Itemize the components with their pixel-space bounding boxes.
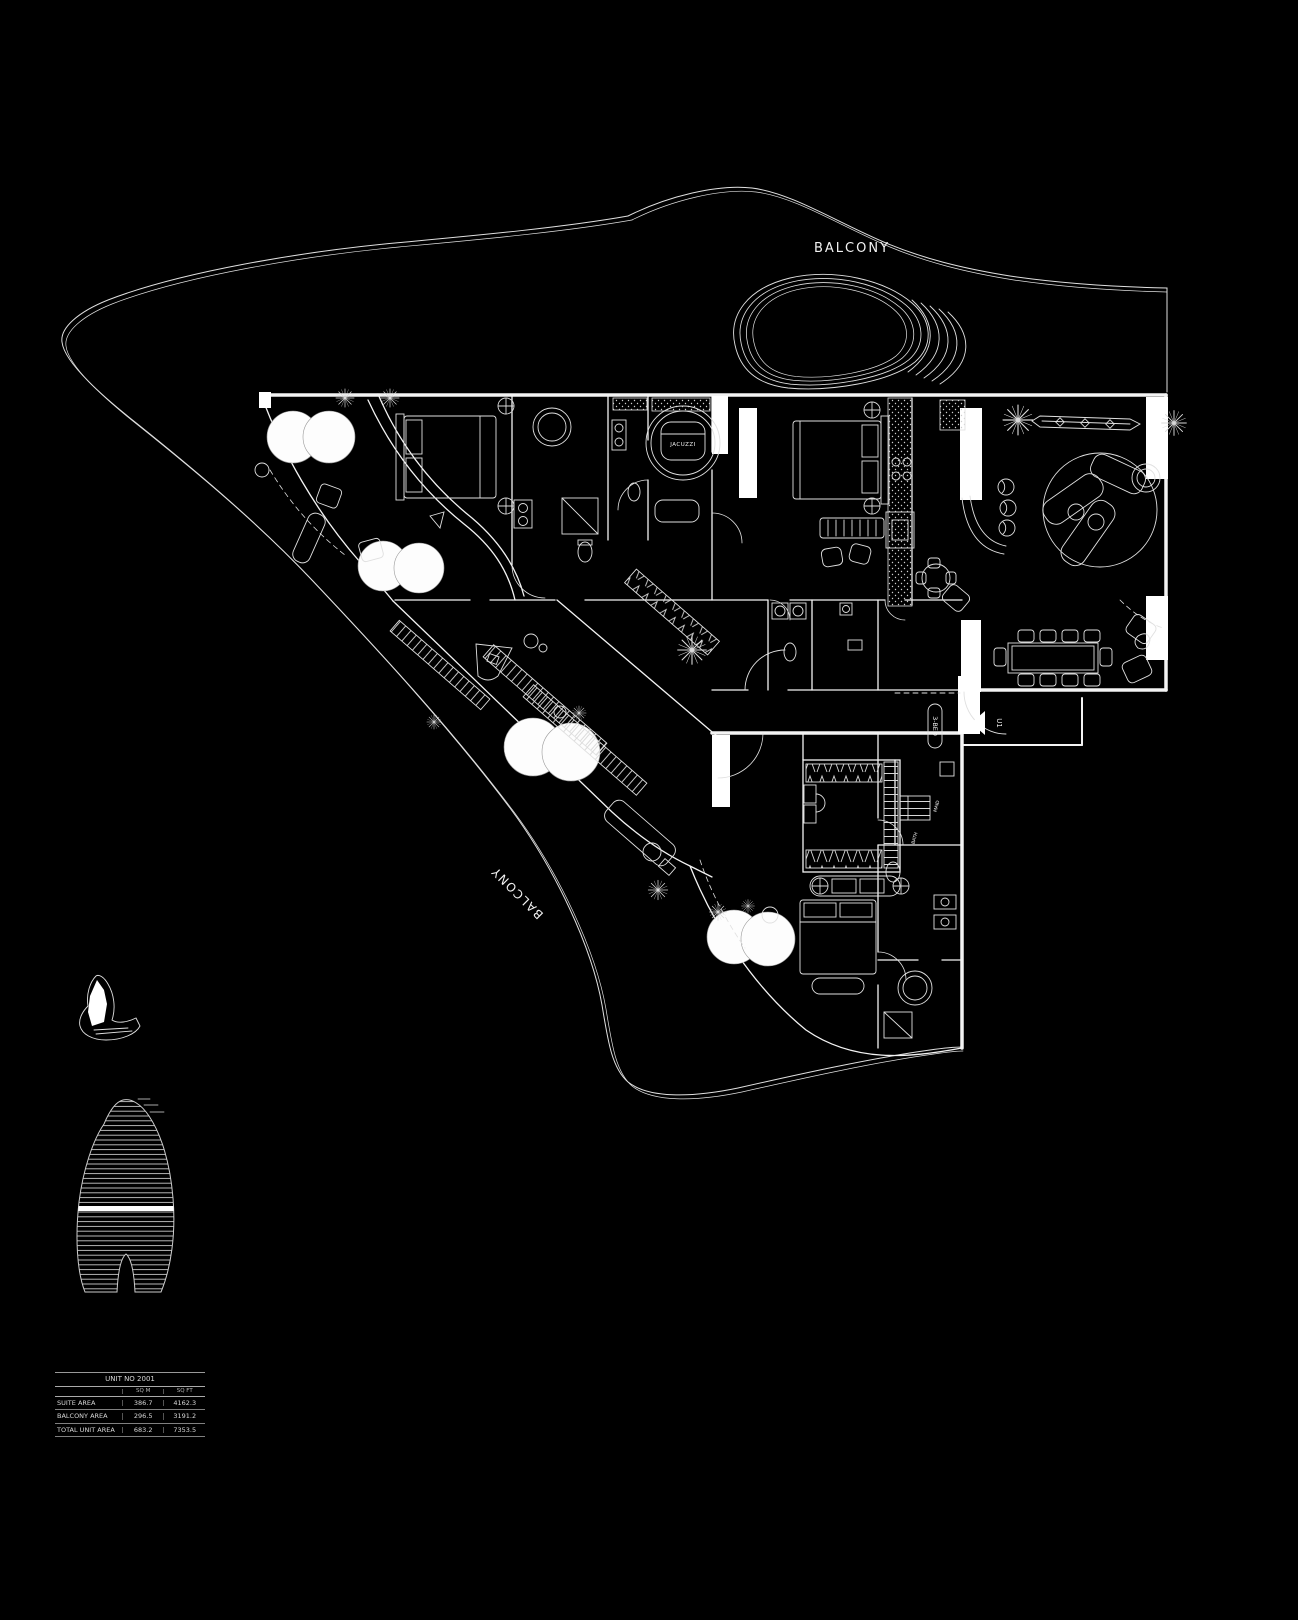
stone-texture-strips <box>613 398 965 606</box>
table-row: SUITE AREA 386.7 4162.3 <box>55 1397 205 1411</box>
col-sq-m: SQ M <box>122 1389 164 1395</box>
balcony-left-label: BALCONY <box>488 864 546 922</box>
table-row: BALCONY AREA 296.5 3191.2 <box>55 1410 205 1424</box>
tower-elevation <box>70 1099 180 1292</box>
bathroom-3 <box>884 862 956 1038</box>
table-row: TOTAL UNIT AREA 683.2 7353.5 <box>55 1424 205 1438</box>
guest-bath <box>612 420 699 522</box>
jacuzzi-label: JACUZZI <box>669 442 696 448</box>
privacy-curtains <box>270 470 1163 948</box>
master-bath <box>514 408 598 562</box>
bedroom-2 <box>793 402 889 568</box>
balcony-area-label: BALCONY AREA <box>55 1413 122 1420</box>
plants <box>336 389 1186 921</box>
maid-label: MAID <box>933 799 942 812</box>
total-area-label: TOTAL UNIT AREA <box>55 1427 122 1434</box>
floor-plan-page: BALCONY BALCONY JACUZZI 3-BED U1 MAID BA… <box>0 0 1298 1620</box>
entry-unit-label: U1 <box>995 718 1003 728</box>
area-table-header: SQ M SQ FT <box>55 1387 205 1397</box>
suite-area-label: SUITE AREA <box>55 1400 122 1407</box>
balcony-area-sqm: 296.5 <box>122 1413 164 1420</box>
unit-walls <box>262 394 1166 1056</box>
living-room <box>962 416 1160 570</box>
key-plan <box>80 975 140 1040</box>
unit-number-title: UNIT NO 2001 <box>55 1373 205 1387</box>
balcony-top-label: BALCONY <box>814 241 890 256</box>
col-sq-ft: SQ FT <box>163 1389 205 1395</box>
closet-room <box>804 762 898 868</box>
unit-area-table: UNIT NO 2001 SQ M SQ FT SUITE AREA 386.7… <box>55 1372 205 1437</box>
bath-label: BATH <box>911 832 920 845</box>
suite-area-sqm: 386.7 <box>122 1400 164 1407</box>
maid-room <box>900 762 954 820</box>
laundry-powder-row <box>772 603 862 661</box>
bed3-label: 3-BED <box>931 716 939 736</box>
balcony-area-sqft: 3191.2 <box>163 1413 205 1420</box>
suite-area-sqft: 4162.3 <box>163 1400 205 1407</box>
outer-balcony-outline <box>62 187 1167 1099</box>
pool <box>734 274 966 388</box>
total-area-sqm: 683.2 <box>122 1427 164 1434</box>
total-area-sqft: 7353.5 <box>163 1427 205 1434</box>
